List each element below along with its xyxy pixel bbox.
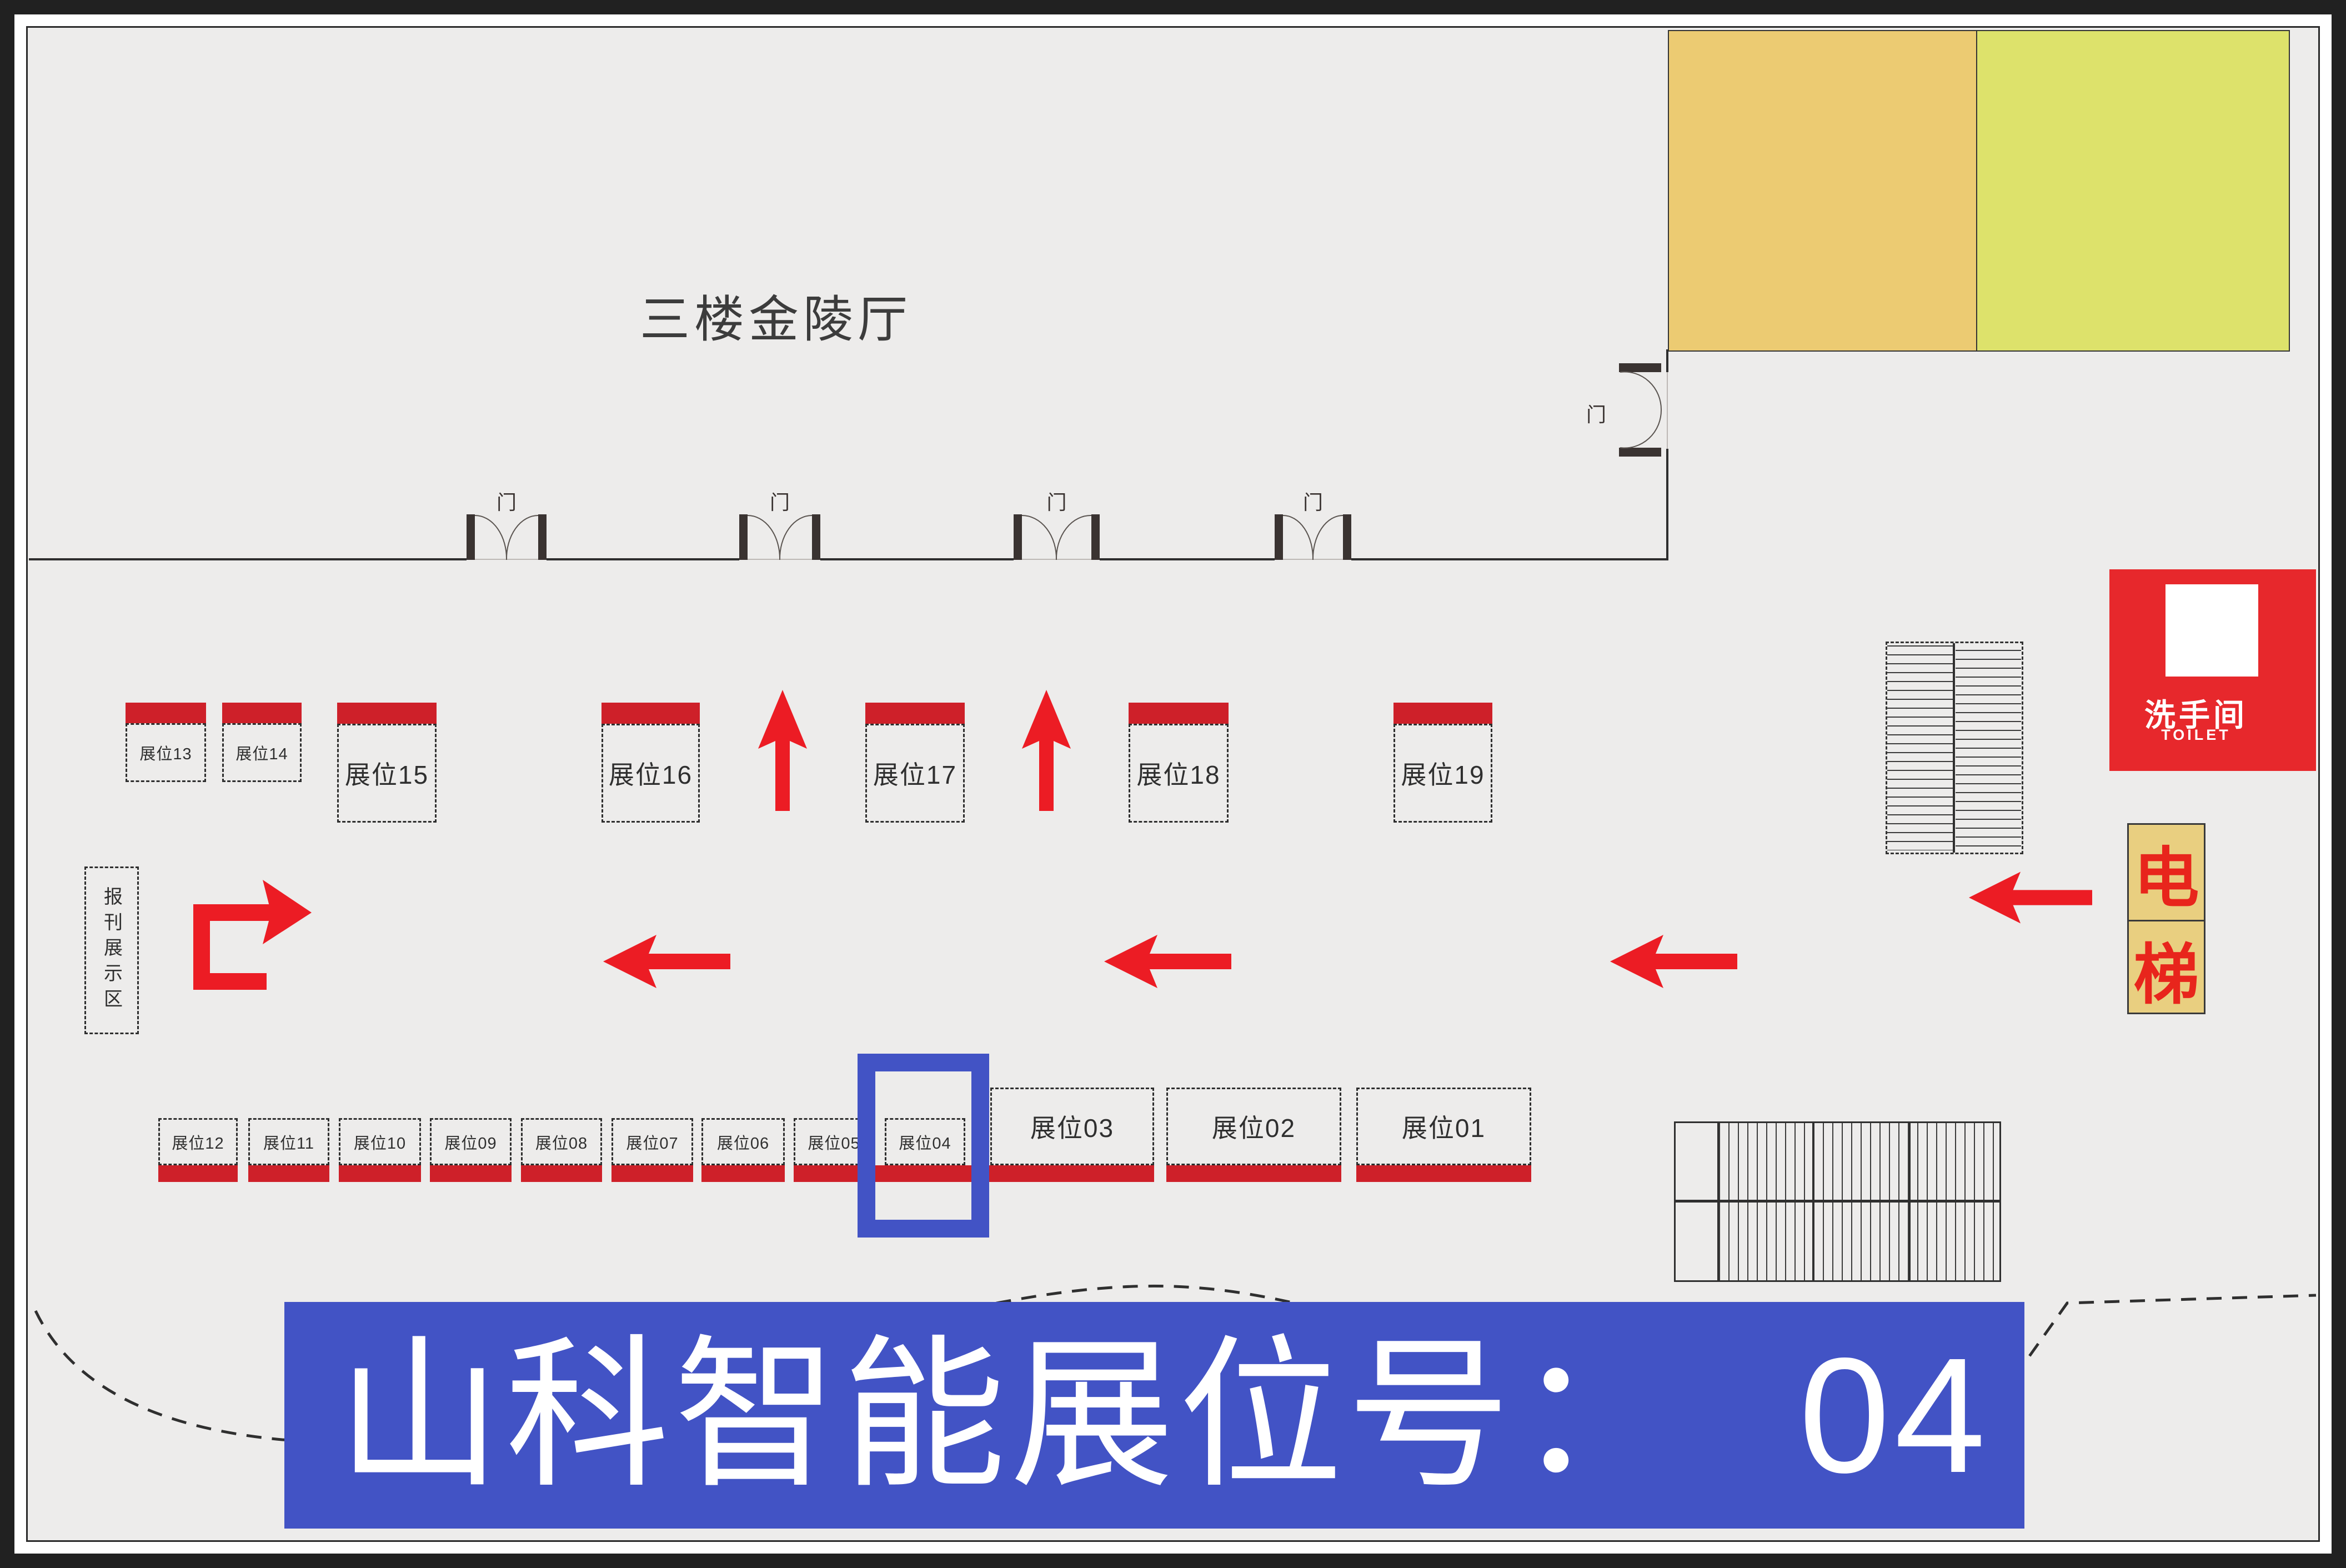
booth-number-banner: 山科智能展位号： 04: [284, 1302, 2024, 1529]
booth-label: 展位03: [990, 1088, 1154, 1165]
highlighted-booth-marker: [858, 1054, 989, 1238]
banner-text-prefix: 山科智能展位号：: [337, 1334, 1683, 1497]
banner-booth-number: 04: [1799, 1334, 1990, 1497]
booth-03: 展位03: [990, 1088, 1154, 1165]
